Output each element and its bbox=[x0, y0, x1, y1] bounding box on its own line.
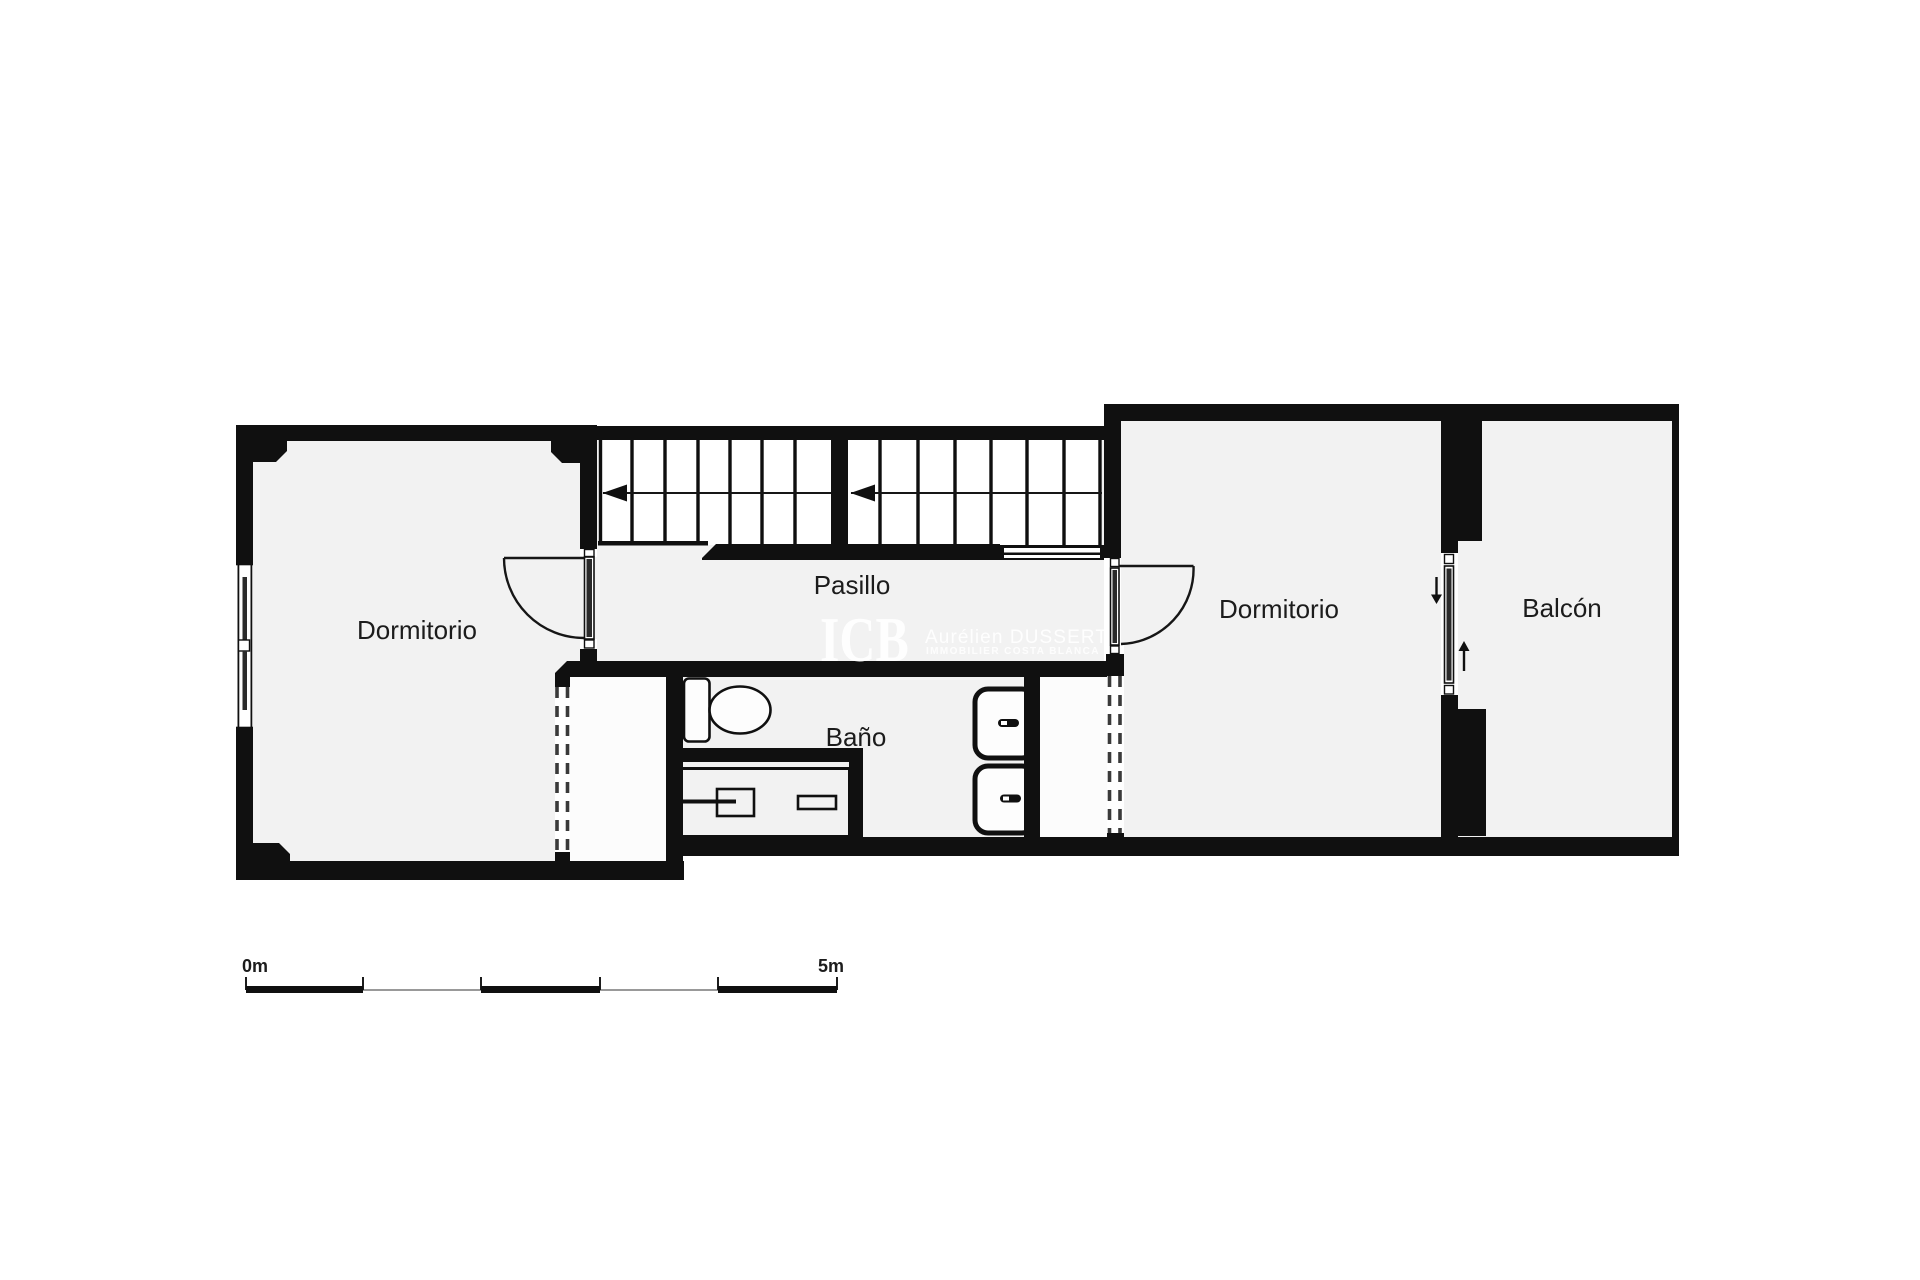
svg-text:Dormitorio: Dormitorio bbox=[1219, 594, 1339, 624]
svg-text:Balcón: Balcón bbox=[1522, 593, 1602, 623]
svg-text:5m: 5m bbox=[818, 956, 844, 976]
svg-text:ICB: ICB bbox=[820, 605, 909, 675]
svg-text:IMMOBILIER COSTA BLANCA: IMMOBILIER COSTA BLANCA bbox=[926, 646, 1100, 657]
svg-text:Dormitorio: Dormitorio bbox=[357, 615, 477, 645]
svg-text:0m: 0m bbox=[242, 956, 268, 976]
svg-text:Aurélien DUSSERT: Aurélien DUSSERT bbox=[925, 627, 1108, 648]
svg-text:Baño: Baño bbox=[826, 722, 887, 752]
svg-text:Pasillo: Pasillo bbox=[814, 570, 891, 600]
